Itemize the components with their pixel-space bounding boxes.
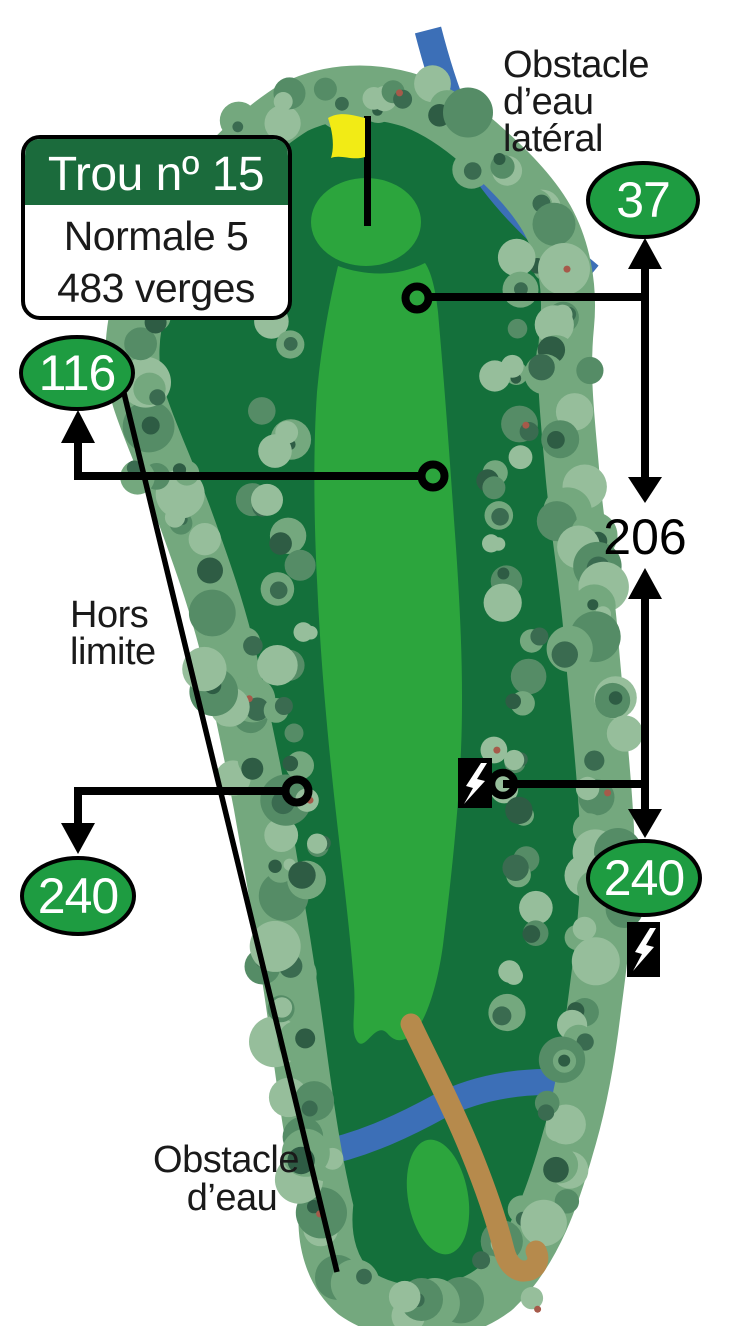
golf-hole-diagram: 37 116 206 240 240 Trou nº 15 Normale 5 … bbox=[0, 0, 750, 1326]
hole-distance: 483 verges bbox=[57, 265, 255, 311]
span-206-value: 206 bbox=[603, 509, 686, 565]
label-water-line2: d’eau bbox=[187, 1177, 277, 1219]
label-out-of-bounds-line1: Hors bbox=[70, 594, 148, 636]
flag-icon bbox=[328, 114, 365, 158]
hole-info-card: Trou nº 15 Normale 5 483 verges bbox=[23, 137, 290, 318]
label-lateral-water-line1: Obstacle bbox=[503, 44, 649, 86]
label-lateral-water-line2: d’eau bbox=[503, 81, 593, 123]
badge-240-right-value: 240 bbox=[604, 850, 684, 906]
label-water-line1: Obstacle bbox=[153, 1139, 299, 1181]
hole-title: Trou nº 15 bbox=[48, 148, 264, 201]
hole-par: Normale 5 bbox=[64, 213, 249, 259]
badge-37-value: 37 bbox=[616, 172, 670, 228]
badge-240-left-value: 240 bbox=[38, 868, 118, 924]
label-lateral-water-line3: latéral bbox=[503, 118, 603, 160]
badge-116-value: 116 bbox=[39, 345, 116, 401]
flag-pole bbox=[364, 116, 371, 226]
label-out-of-bounds-line2: limite bbox=[70, 631, 156, 673]
